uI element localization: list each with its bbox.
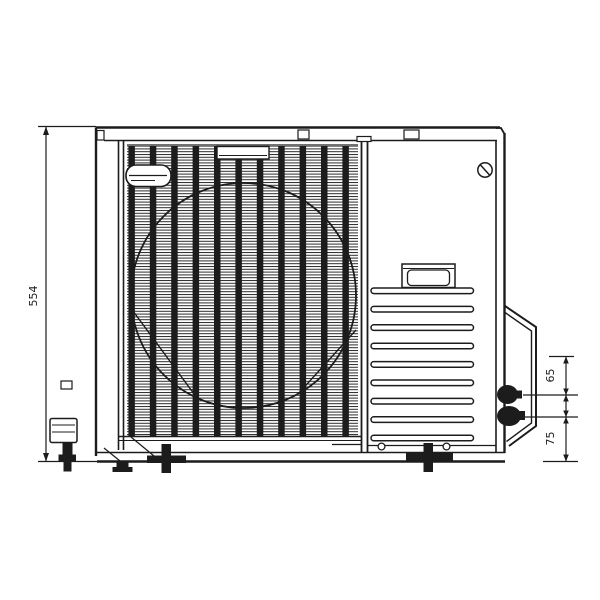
divider-cap — [357, 137, 371, 142]
nameplate-inner — [408, 270, 450, 286]
anchor-bolt — [63, 443, 73, 455]
arrowhead-icon — [563, 411, 569, 418]
valve-lower-dimension-label: 75 — [544, 432, 557, 446]
bracket-washer — [61, 381, 72, 389]
wall-bracket-plate — [50, 419, 77, 443]
anchor-bolt-stem — [64, 462, 72, 472]
mounting-foot — [117, 462, 129, 467]
top-left-corner-lip — [97, 131, 104, 141]
ac-outdoor-unit-drawing: 554 — [0, 0, 600, 600]
valve-upper-dimension-label: 65 — [544, 369, 557, 383]
louver-slat — [371, 325, 474, 331]
valve-stub — [515, 391, 522, 399]
louver-slat — [371, 362, 474, 368]
louver-slat — [371, 288, 474, 294]
louver-slat — [371, 417, 474, 423]
drawing-canvas: 554 — [0, 0, 600, 600]
mounting-foot-pad — [113, 467, 133, 472]
louver-slat — [371, 306, 474, 312]
louver-slat — [371, 343, 474, 349]
top-right-corner — [496, 128, 505, 134]
service-valve — [497, 385, 518, 404]
louver-slat — [371, 398, 474, 404]
grille-brace-plate — [217, 147, 269, 160]
top-panel-tab — [404, 130, 419, 139]
arrowhead-icon — [563, 455, 569, 462]
base-brace — [104, 448, 120, 461]
height-dimension: 554 — [27, 127, 97, 462]
arrowhead-icon — [563, 389, 569, 396]
grille-ribs — [127, 146, 358, 437]
screw-icon — [378, 443, 385, 450]
screw-icon — [443, 443, 450, 450]
arrowhead-icon — [563, 357, 569, 364]
front-grille — [119, 141, 359, 450]
valve-bracket — [497, 306, 536, 446]
arrowhead-icon — [563, 417, 569, 424]
valve-stub — [517, 411, 525, 420]
louver-slat — [371, 435, 474, 441]
anchor-bolt-nut — [59, 455, 77, 463]
top-panel-tab — [298, 130, 309, 139]
height-dimension-label: 554 — [27, 286, 40, 307]
louver-slat — [371, 380, 474, 386]
mounting-foot-pad — [406, 453, 453, 462]
arrowhead-icon — [43, 127, 49, 136]
side-louvers — [371, 288, 474, 441]
drain-fitting-flange — [147, 456, 186, 464]
arrowhead-icon — [563, 395, 569, 402]
arrowhead-icon — [43, 453, 49, 462]
